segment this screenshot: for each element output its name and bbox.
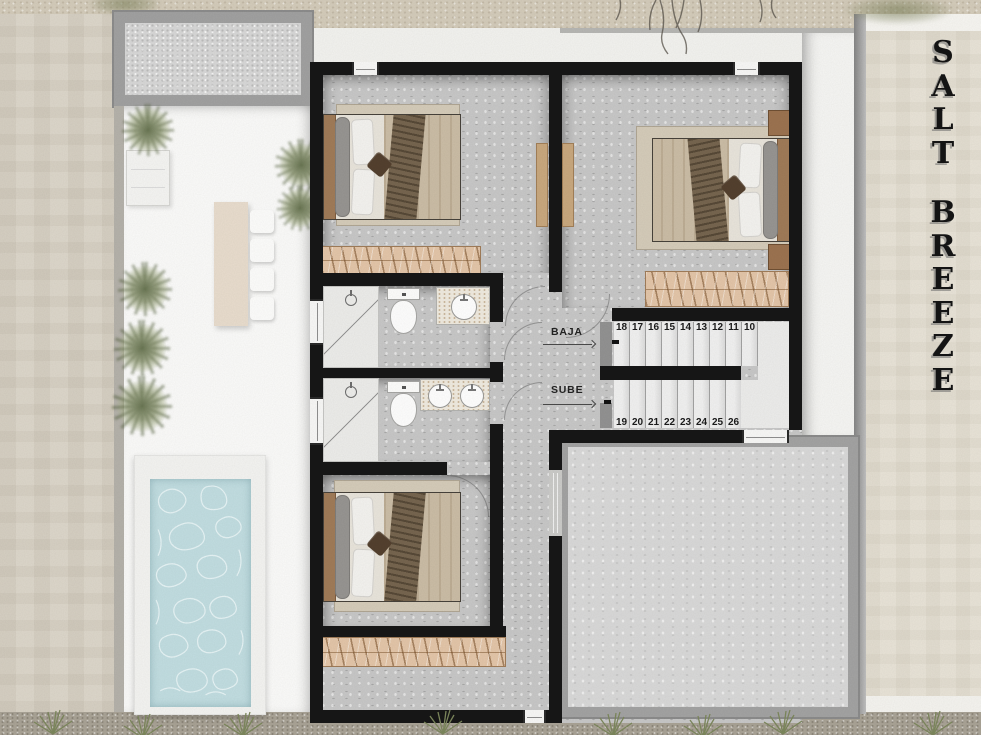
stair-step: 13 [694,322,710,366]
title-letter: Z [932,330,954,364]
stair-step: 23 [678,380,694,428]
project-title: SALT BREEZE [903,36,981,397]
wall [310,62,323,723]
wall [612,308,802,321]
wall [600,366,741,380]
stair-landing [758,322,789,428]
title-letter: B [930,196,955,230]
stair-step: 21 [646,380,662,428]
stair-step: 26 [726,380,742,428]
toilet-icon [387,381,420,393]
vanity [420,379,490,411]
title-letter: E [932,364,955,398]
floor-plan: 181716151413121110 192021222324252627 BA… [0,0,981,735]
plant-icon [114,258,176,320]
water-texture [150,479,251,707]
window [310,299,323,345]
desk [562,143,574,227]
chair [250,239,274,262]
stair-step: 10 [742,322,758,366]
stair-step: 16 [646,322,662,366]
chair [250,268,274,291]
wardrobe [318,637,506,667]
vanity [436,287,490,325]
window [352,62,379,75]
wall [490,424,503,626]
wall [310,368,503,378]
stairs-up-label: SUBE [551,384,583,396]
stairs-upper-run: 181716151413121110 [614,322,758,366]
stair-step: 11 [726,322,742,366]
direction-arrow [543,340,595,348]
terrace-room [558,437,858,717]
shower [323,378,379,462]
title-word: BREEZE [930,196,955,397]
shower [323,286,379,368]
side-passage [802,33,854,437]
title-letter: L [932,103,953,137]
stair-step: 24 [694,380,710,428]
wardrobe [321,246,481,274]
desk [536,143,548,227]
stair-step: 14 [678,322,694,366]
stair-wall [600,403,612,428]
plant-icon [110,316,174,380]
swimming-pool [150,479,251,707]
wardrobe [645,271,789,307]
wall [490,362,503,382]
step-start-tick [612,340,619,344]
title-letter: E [932,263,955,297]
bed-icon [652,138,790,242]
toilet-icon [387,288,420,300]
sink-icon [460,384,484,408]
sink-icon [428,384,452,408]
plant-icon [108,372,176,440]
title-word: SALT [931,36,954,170]
direction-arrow [543,400,595,408]
grass-icon [0,708,981,735]
stair-step: 12 [710,322,726,366]
branch-icon [560,0,860,58]
stairs-lower-run: 192021222324252627 [614,380,758,428]
window [733,62,760,75]
nightstand [768,110,790,136]
title-letter: A [931,70,954,104]
title-letter: R [931,230,956,264]
plant-icon [118,100,178,160]
dining-table [214,202,248,326]
window [310,397,323,445]
exterior-wall-left [0,14,116,712]
sliding-door [742,430,789,443]
hall-door [549,470,562,536]
toilet-icon [390,393,417,427]
sink-icon [451,294,477,320]
stair-step: 15 [662,322,678,366]
wall [549,62,562,292]
wall [490,273,503,322]
chair [250,297,274,320]
wall [310,626,506,637]
stair-step: 17 [630,322,646,366]
wall [310,273,503,286]
stair-wall [600,322,612,366]
bed-icon [323,492,461,602]
stair-step: 25 [710,380,726,428]
planter-box [114,12,312,106]
bed-icon [323,114,461,220]
toilet-icon [390,300,417,334]
stair-landing [741,380,758,428]
stair-step: 22 [662,380,678,428]
wall [562,430,742,443]
step-start-tick [604,400,611,404]
wall [310,462,447,475]
wall [789,62,802,430]
nightstand [768,244,790,270]
title-letter: T [932,137,954,171]
stair-step: 18 [614,322,630,366]
chair [250,210,274,233]
stair-step: 20 [630,380,646,428]
title-letter: E [932,297,955,331]
title-letter: S [932,36,954,70]
stair-step: 19 [614,380,630,428]
